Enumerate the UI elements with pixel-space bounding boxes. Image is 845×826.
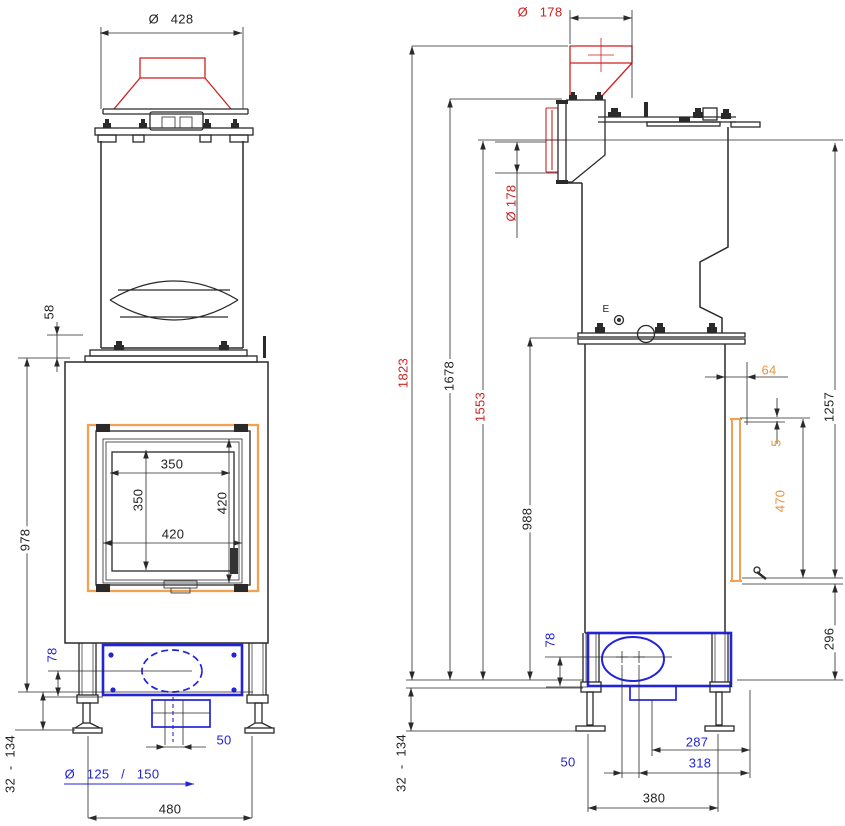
label-marker-e: E [603, 305, 610, 315]
side-lower-body [585, 344, 725, 633]
dim-front-leg-range: 32 - 134 [4, 735, 17, 793]
dim-front-glass-width: 350 [161, 458, 184, 471]
dim-front-feet-spacing: 480 [159, 803, 182, 816]
dim-side-rear-flue-diameter: Ø 178 [505, 185, 518, 222]
dim-front-bottom-flue-diameter: Ø 125 / 150 [65, 768, 160, 781]
dim-side-top-flue-diameter: Ø 178 [518, 6, 563, 19]
side-top-fittings [598, 102, 760, 127]
dim-side-stub-to-rear: 287 [686, 736, 709, 749]
drawing-linework [0, 0, 845, 826]
dim-side-center-to-rear: 318 [689, 757, 712, 770]
dim-front-bottom-offset: 50 [216, 734, 231, 747]
front-flue-adapter [114, 58, 231, 109]
dim-side-height-to-top-plate: 1678 [443, 359, 456, 393]
dim-side-feet-spacing: 380 [643, 792, 666, 805]
front-door-latch [230, 548, 238, 574]
dim-side-rear-door-height: 470 [774, 490, 787, 513]
dim-side-door-gap: 5 [770, 439, 783, 447]
side-rear-door [730, 419, 766, 581]
dim-front-door-width: 420 [162, 528, 185, 541]
technical-drawing-canvas: Ø 428 58 978 350 350 420 420 78 32 - 134… [0, 0, 845, 826]
dim-side-leg-range: 32 - 134 [395, 734, 408, 792]
dim-side-height-to-rear-flue: 1553 [474, 390, 487, 424]
dim-side-total-height: 1823 [397, 358, 410, 388]
front-top-plate [95, 109, 253, 142]
dim-side-plinth-height: 78 [544, 632, 557, 647]
dim-front-glass-height: 350 [132, 489, 145, 512]
dim-side-center-offset: 50 [560, 756, 575, 769]
side-legs [576, 633, 734, 731]
dim-front-flue-diameter: Ø 428 [149, 13, 194, 26]
dim-side-door-bottom-height: 296 [823, 626, 836, 653]
dim-front-collar-height: 58 [43, 304, 56, 319]
dim-side-door-offset: 64 [761, 364, 776, 377]
side-smoke-box [556, 92, 605, 184]
dim-side-height-to-body-top: 988 [521, 506, 534, 533]
side-flue-hole [602, 637, 664, 681]
front-view-drawing [15, 27, 274, 821]
side-upper-body [558, 127, 745, 344]
dim-front-body-height: 978 [19, 527, 32, 554]
front-door [88, 424, 258, 593]
side-plinth-box [545, 633, 731, 700]
side-flue-stack [546, 38, 632, 172]
dim-side-flue-to-door-bottom: 1257 [823, 390, 836, 424]
front-upper-drum [85, 141, 266, 362]
dim-front-plinth-height: 78 [46, 647, 59, 662]
dim-front-door-height: 420 [216, 492, 229, 515]
